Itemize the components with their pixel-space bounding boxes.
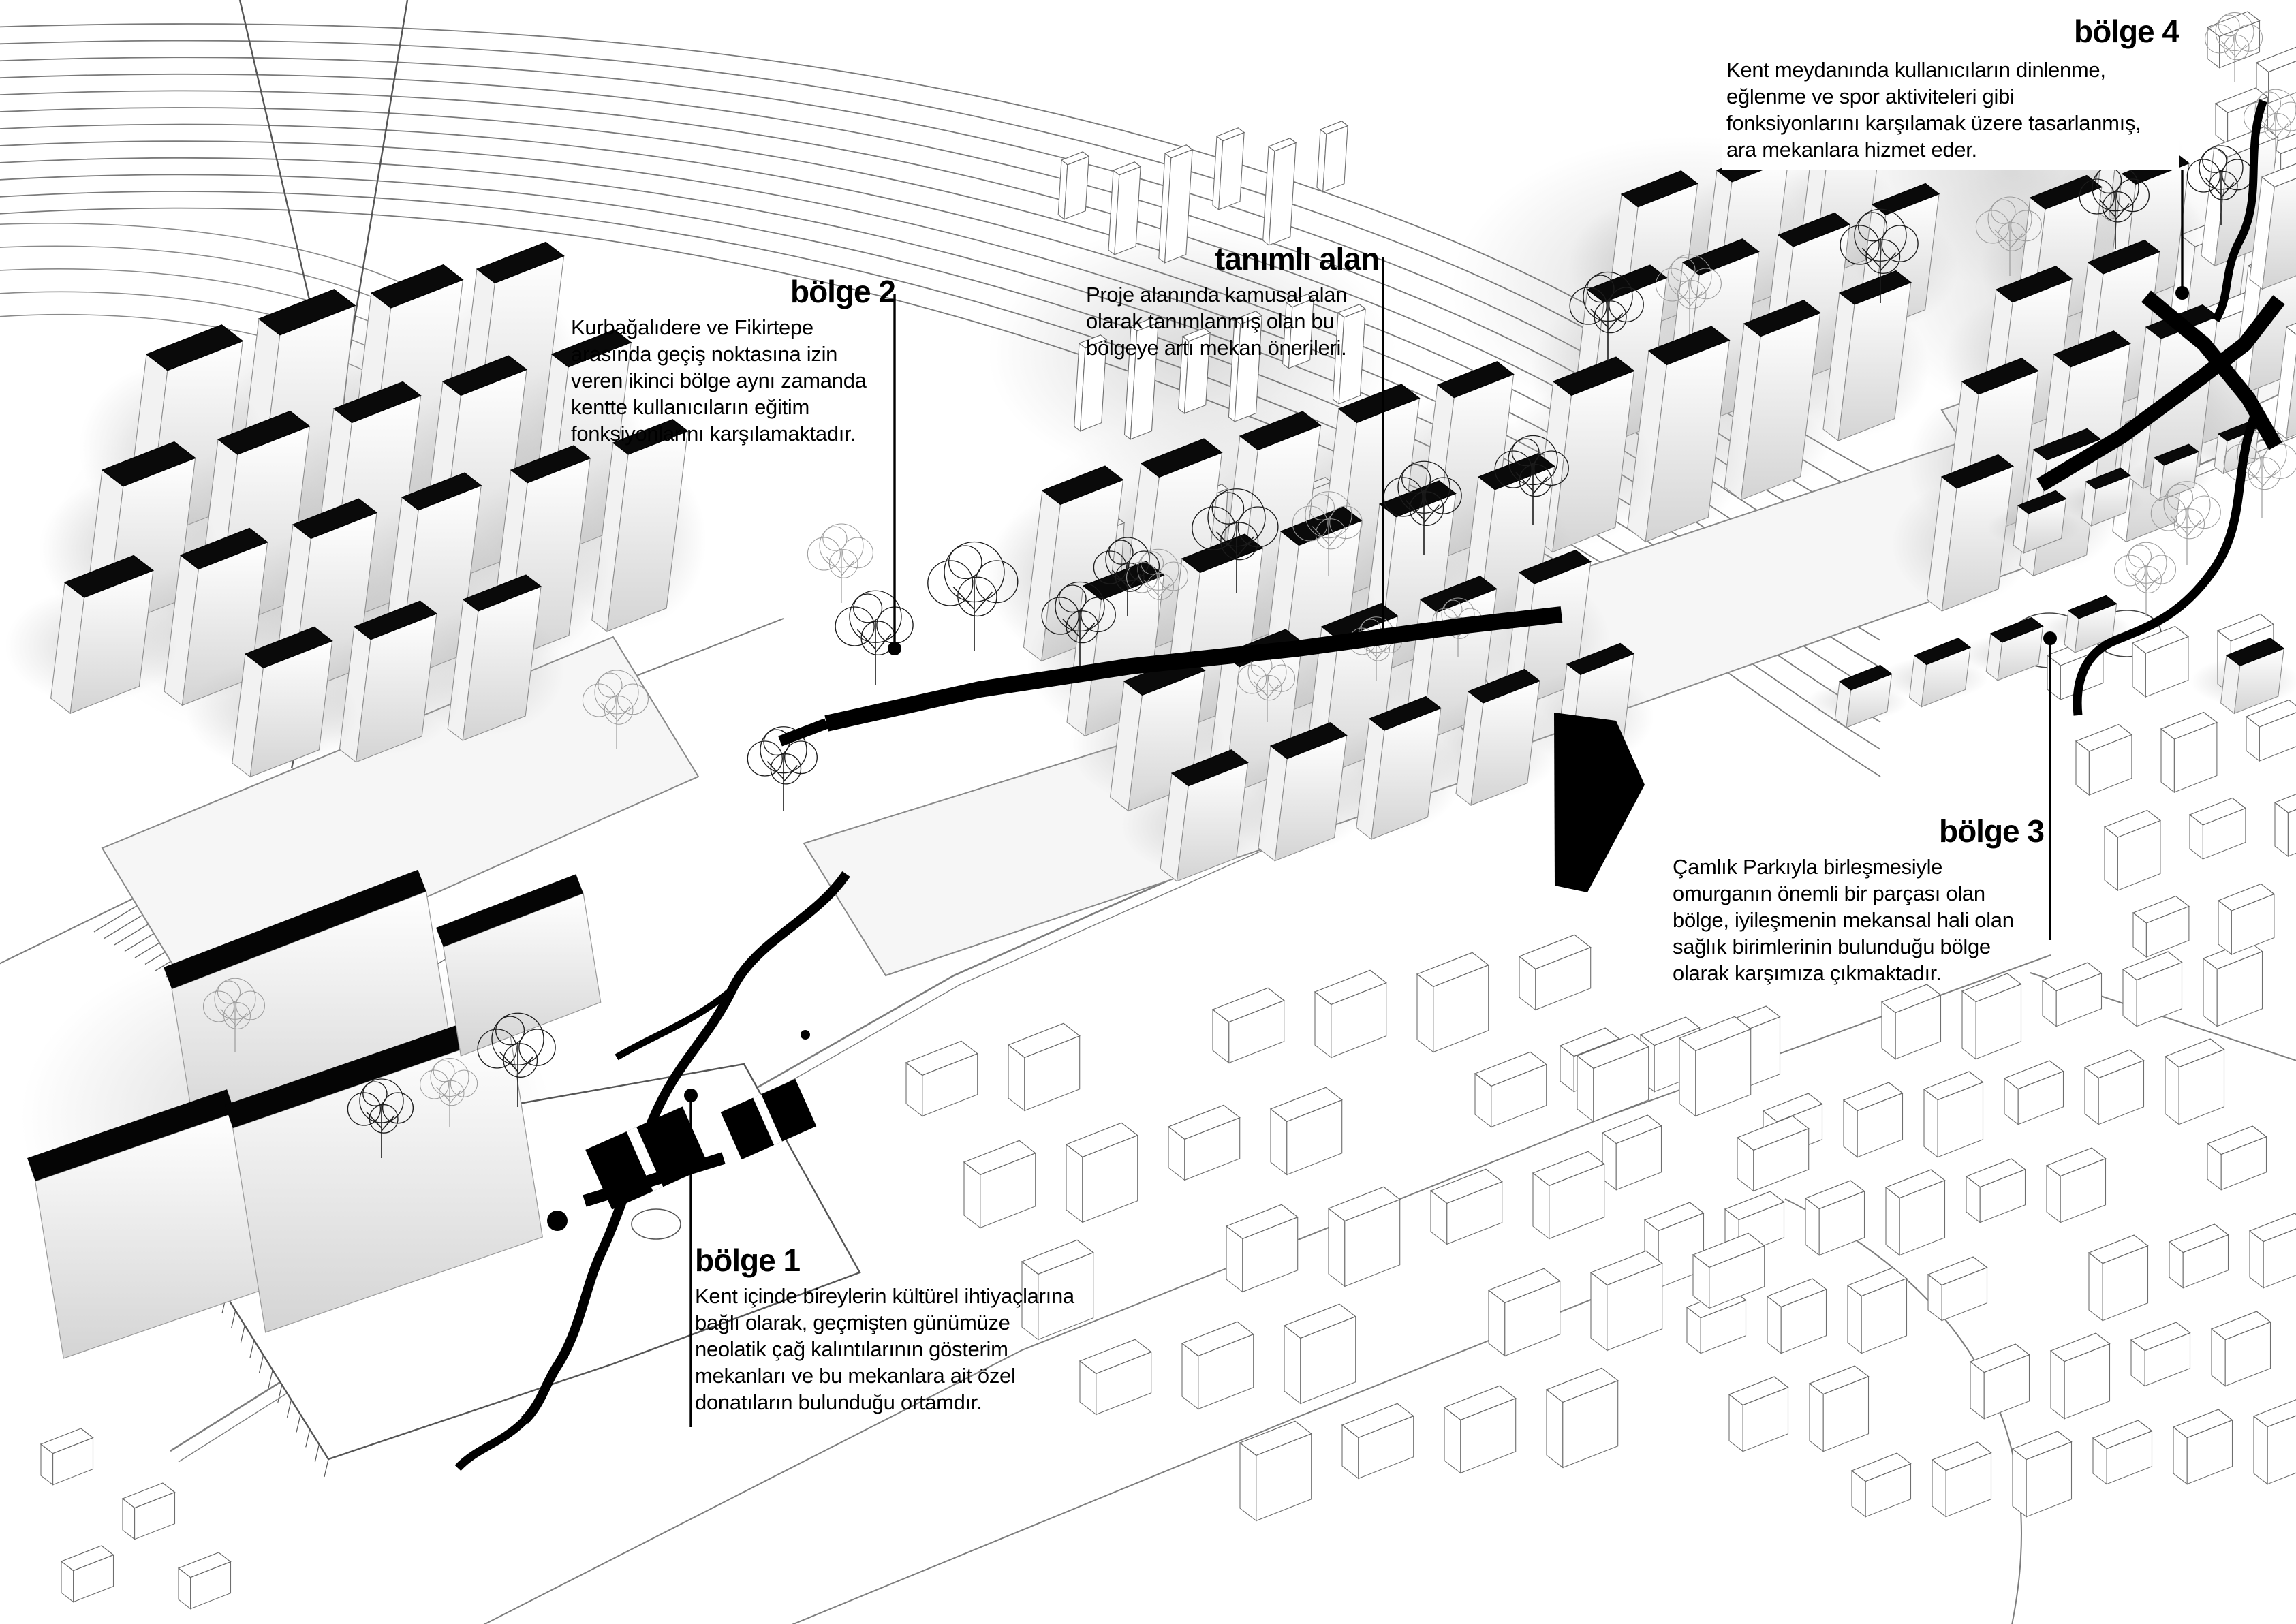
annotation-bolge-2: bölge 2 Kurbağalıdere ve Fikirtepe arası… <box>571 275 895 447</box>
bolge-3-body: Çamlık Parkıyla birleşmesiyle omurganın … <box>1673 854 2044 986</box>
bolge-4-body: Kent meydanında kullanıcıların dinlenme,… <box>1722 54 2179 170</box>
bolge-2-title: bölge 2 <box>571 275 895 308</box>
bolge-3-title: bölge 3 <box>1673 815 2044 847</box>
tanimli-alan-body: Proje alanında kamusal alan olarak tanım… <box>1086 281 1379 361</box>
annotation-bolge-4: bölge 4 Kent meydanında kullanıcıların d… <box>1726 15 2179 170</box>
masterplan-diagram: bölge 2 Kurbağalıdere ve Fikirtepe arası… <box>0 0 2296 1624</box>
tanimli-alan-title: tanımlı alan <box>1086 243 1379 275</box>
bolge-1-body: Kent içinde bireylerin kültürel ihtiyaçl… <box>695 1283 1158 1416</box>
annotation-bolge-3: bölge 3 Çamlık Parkıyla birleşmesiyle om… <box>1673 815 2044 986</box>
bolge-2-body: Kurbağalıdere ve Fikirtepe arasında geçi… <box>571 314 895 447</box>
bolge-4-title: bölge 4 <box>1726 15 2179 48</box>
annotation-bolge-1: bölge 1 Kent içinde bireylerin kültürel … <box>695 1244 1158 1416</box>
bolge-1-title: bölge 1 <box>695 1244 1158 1277</box>
annotation-tanimli-alan: tanımlı alan Proje alanında kamusal alan… <box>1086 243 1379 361</box>
